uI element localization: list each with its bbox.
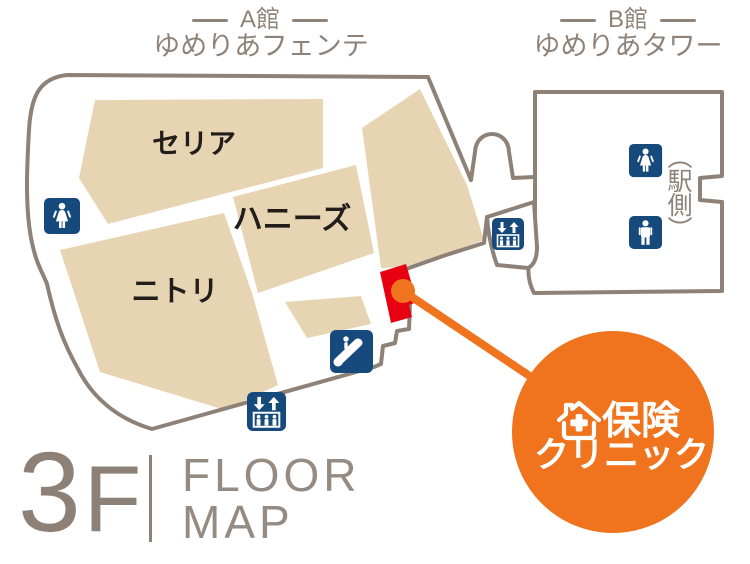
callout-dot bbox=[391, 279, 415, 303]
floor-map: A館 ゆめりあフェンテ B館 ゆめりあタワー セリア ハニーズ ニトリ （駅側）… bbox=[0, 0, 750, 564]
header-dash bbox=[192, 19, 228, 22]
store-block-right bbox=[362, 89, 484, 268]
building-b-outline bbox=[528, 92, 722, 293]
header-dash bbox=[560, 19, 596, 22]
elevator-icon-a bbox=[247, 392, 286, 431]
floor-title-divider bbox=[149, 455, 152, 542]
floor-number-suffix: F bbox=[84, 452, 142, 546]
restroom-female-icon-b bbox=[629, 144, 662, 177]
building-a-title: A館 bbox=[240, 8, 280, 32]
callout-text-line2: クリニック bbox=[534, 438, 706, 473]
escalator-icon bbox=[330, 330, 373, 373]
store-label-seria: セリア bbox=[144, 130, 244, 158]
store-label-nitori: ニトリ bbox=[128, 278, 222, 307]
building-a-header: A館 bbox=[160, 8, 360, 32]
elevator-icon-lobby bbox=[492, 218, 524, 250]
floor-number: 3 F bbox=[18, 436, 142, 549]
building-a-subtitle: ゆめりあフェンテ bbox=[151, 33, 371, 60]
floor-number-digit: 3 bbox=[18, 436, 82, 549]
store-label-honeys: ハニーズ bbox=[229, 205, 355, 235]
floor-map-word2: MAP bbox=[182, 499, 294, 545]
restroom-male-icon-b bbox=[629, 216, 662, 249]
floor-map-word1: FLOOR bbox=[182, 452, 360, 498]
header-dash bbox=[292, 19, 328, 22]
station-side-label: （駅側） bbox=[665, 144, 690, 244]
building-b-header: B館 bbox=[528, 8, 728, 32]
store-blocks bbox=[60, 89, 484, 410]
header-dash bbox=[660, 19, 696, 22]
building-b-subtitle: ゆめりあタワー bbox=[528, 33, 728, 60]
restroom-female-icon-a bbox=[44, 198, 80, 234]
doorway-arch bbox=[471, 134, 534, 180]
building-b-title: B館 bbox=[608, 8, 648, 32]
